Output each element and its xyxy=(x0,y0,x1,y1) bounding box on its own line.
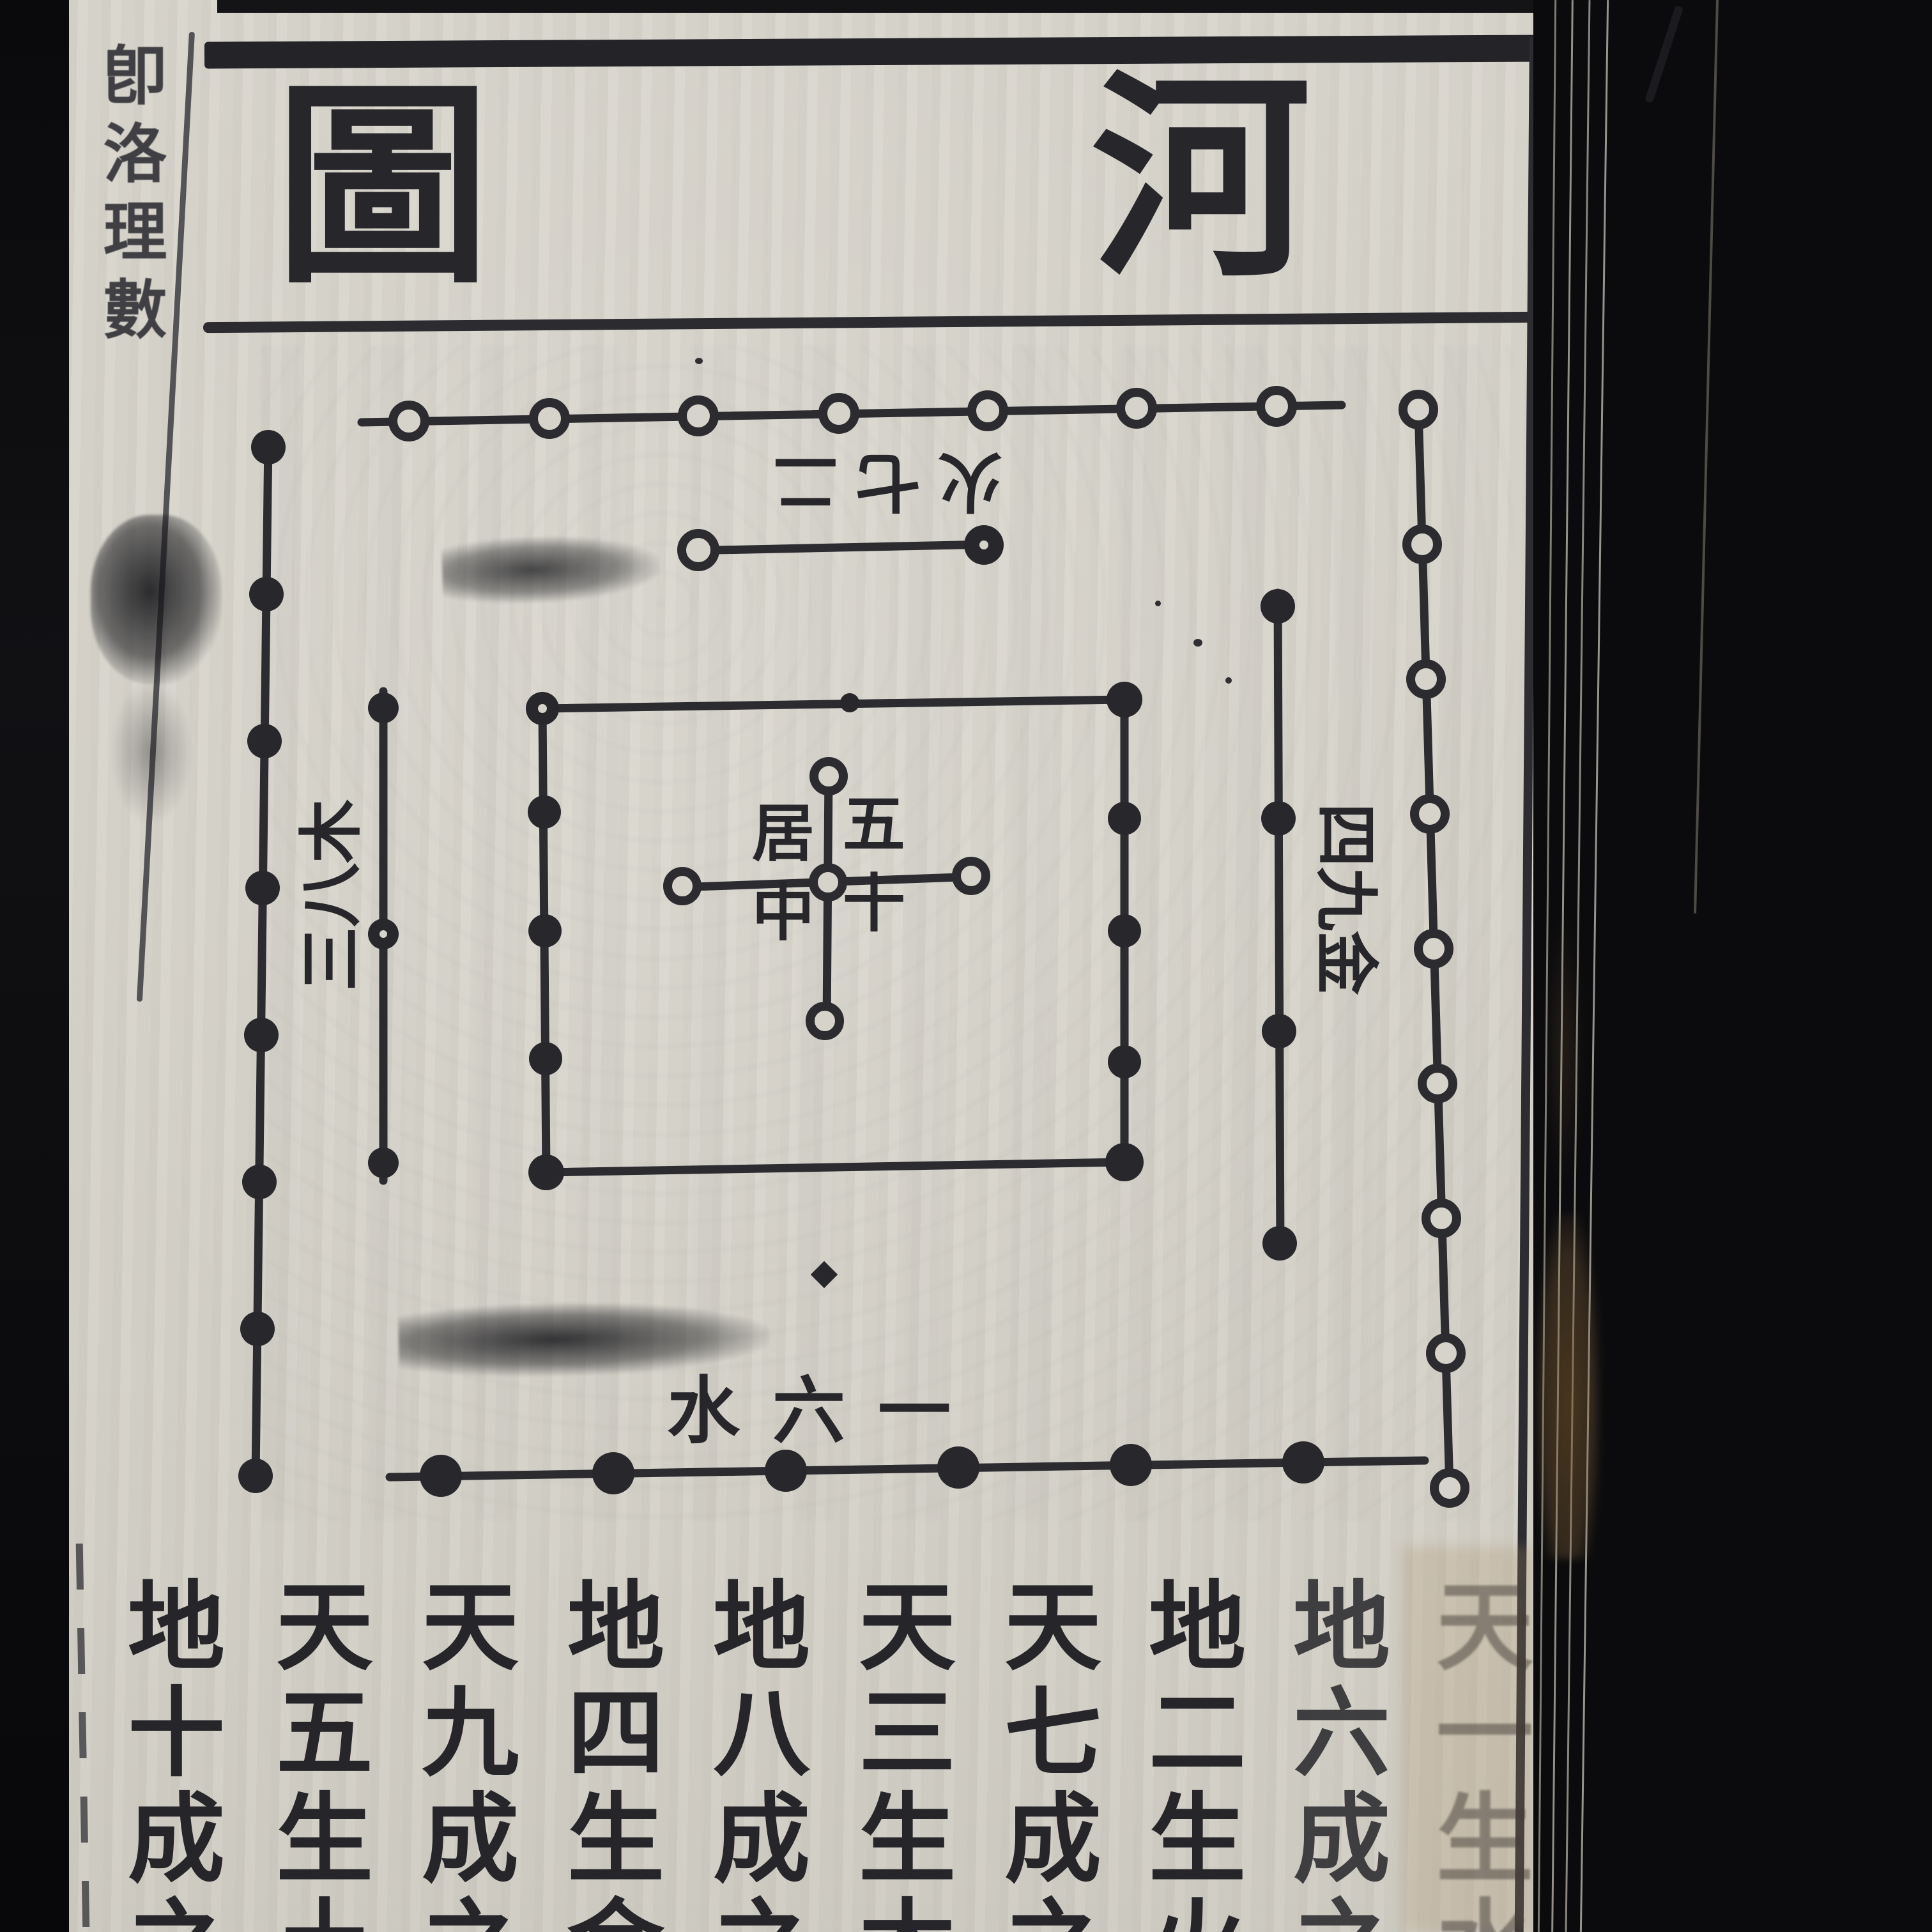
ink-speck xyxy=(1193,639,1202,647)
page-edge-line xyxy=(1580,0,1609,1932)
bottom-text-column: 地十成之 xyxy=(102,1575,224,1932)
label-bottom-yiliushui: 一六水 xyxy=(667,1370,951,1454)
bottom-text-column: 天七成之 xyxy=(979,1575,1100,1932)
bottom-text-column: 天五生土 xyxy=(250,1575,372,1932)
label-char: 二 xyxy=(773,447,838,512)
fore-edge-stain xyxy=(1536,1214,1600,1559)
label-top-erqihuo: 二七火 xyxy=(773,442,1003,517)
bottom-text-column: 天九成之 xyxy=(396,1575,517,1932)
photo-of-book-page: 卽洛理數 河 圖 xyxy=(0,0,1932,1932)
bottom-text-column: 地八成之 xyxy=(687,1575,809,1932)
label-center-juzhong: 居中 xyxy=(744,800,809,958)
bottom-text-column: 地四生金 xyxy=(542,1575,663,1932)
label-char: 七 xyxy=(855,447,921,512)
ink-speck xyxy=(695,358,703,364)
bottom-text-block: 天一生水地六成之地二生火天七成之天三生木地八成之地四生金天九成之天五生土地十成之 xyxy=(69,1572,1533,1932)
bottom-text-column: 天三生木 xyxy=(833,1575,954,1932)
label-left-sanbamu: 三八木 xyxy=(295,774,370,991)
ink-speck xyxy=(1225,677,1232,684)
ink-speck xyxy=(1155,601,1161,606)
bottom-text-column: 地六成之 xyxy=(1268,1575,1389,1932)
fore-edge-stain-faint xyxy=(1545,914,1583,1182)
label-right-sijiujin: 四九金 xyxy=(1307,803,1383,1020)
label-char: 六 xyxy=(772,1376,845,1448)
label-char: 水 xyxy=(667,1376,740,1448)
label-char: 火 xyxy=(938,447,1003,512)
page-edge-crisp-line xyxy=(1694,0,1719,914)
paper-stain-bottom-right xyxy=(1402,1546,1533,1932)
label-char: 一 xyxy=(878,1376,951,1448)
bottom-text-column: 地二生火 xyxy=(1123,1575,1245,1932)
label-center-wushi: 五十 xyxy=(834,791,900,949)
page-corner-dark-mark xyxy=(1644,5,1683,103)
ink-smudge-lower xyxy=(398,1300,770,1378)
book-page: 卽洛理數 河 圖 xyxy=(69,0,1533,1932)
table-surface xyxy=(0,0,69,1932)
ink-smudge-upper xyxy=(441,533,660,606)
book-fore-edge xyxy=(1533,0,1932,1932)
